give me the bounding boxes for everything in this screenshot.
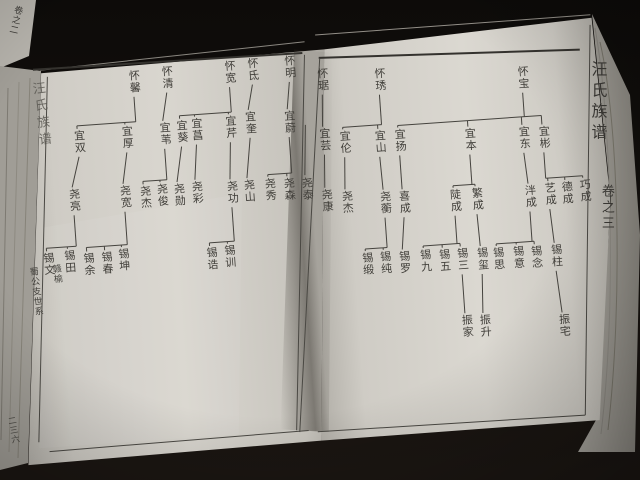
person-yao-tai: 尧泰 bbox=[298, 177, 314, 202]
person-yicheng: 艺成 bbox=[541, 182, 557, 207]
person-xi-gao: 锡诰 bbox=[203, 246, 219, 271]
person-yi-kui1: 宜葵 bbox=[173, 119, 189, 144]
person-xi-nian: 锡念 bbox=[527, 245, 543, 270]
person-huai-xiu: 怀琇 bbox=[371, 67, 387, 92]
person-yi-yang: 宜扬 bbox=[391, 128, 407, 153]
person-yao-kang: 尧康 bbox=[318, 188, 334, 213]
person-yao-jun: 尧俊 bbox=[153, 183, 169, 208]
volume-label: 卷之三 bbox=[597, 184, 616, 232]
person-yi-chang: 宜菖 bbox=[188, 117, 204, 142]
connector-line bbox=[541, 115, 542, 124]
person-doucheng: 陡成 bbox=[446, 188, 462, 213]
person-huai-kuan: 怀宽 bbox=[221, 60, 237, 85]
person-xi-yu: 锡余 bbox=[80, 252, 96, 277]
person-xi-san: 锡三 bbox=[453, 247, 469, 272]
person-yao-shan: 尧山 bbox=[240, 179, 256, 204]
person-xi-luo: 锡罗 bbox=[395, 250, 411, 275]
person-yao-gong: 尧功 bbox=[223, 180, 239, 205]
person-yao-xiu: 尧秀 bbox=[261, 177, 277, 202]
person-qiaocheng: 巧成 bbox=[576, 178, 592, 203]
connector-line bbox=[521, 117, 522, 125]
person-pancheng: 泮成 bbox=[521, 184, 537, 209]
person-yi-kui2: 宜奎 bbox=[241, 110, 257, 135]
person-xi-xun: 锡训 bbox=[221, 244, 237, 269]
person-xi-wen: 锡文 bbox=[40, 252, 56, 277]
paper-sheen bbox=[23, 194, 259, 449]
person-huai-ju: 怀琚 bbox=[313, 67, 329, 92]
person-yi-wei1: 宜苇 bbox=[156, 121, 172, 146]
person-xi-wu: 锡五 bbox=[435, 248, 451, 273]
person-huai-xin: 怀馨 bbox=[125, 69, 141, 94]
person-yi-shuang: 宜双 bbox=[70, 129, 86, 154]
person-xi-duan: 锡缎 bbox=[358, 252, 374, 277]
person-yao-jie-r: 尧杰 bbox=[338, 190, 354, 215]
person-zhen-zhai: 振宅 bbox=[555, 313, 571, 338]
book-title: 汪氏族谱 bbox=[586, 60, 610, 144]
person-yao-kuan: 尧宽 bbox=[116, 184, 132, 209]
person-xi-tian: 锡田 bbox=[61, 249, 77, 274]
photo-of-genealogy-book: 卷之二 bbox=[0, 0, 640, 480]
person-huai-bao: 怀宝 bbox=[514, 65, 530, 90]
person-xi-yi: 锡意 bbox=[509, 245, 525, 270]
person-yao-jie-l: 尧杰 bbox=[136, 185, 152, 210]
person-xi-xi: 锡玺 bbox=[473, 247, 489, 272]
person-xi-zhu: 锡柱 bbox=[547, 243, 563, 268]
person-yao-sen: 尧森 bbox=[280, 177, 296, 202]
person-fancheng: 繁成 bbox=[468, 187, 484, 212]
right-page-paper bbox=[293, 17, 625, 440]
person-zhen-sheng: 振升 bbox=[476, 314, 492, 339]
person-yao-liang: 尧亮 bbox=[65, 188, 81, 213]
person-zhen-jia: 振家 bbox=[458, 314, 474, 339]
person-xi-si: 锡思 bbox=[489, 246, 505, 271]
person-yao-xun: 尧勋 bbox=[170, 183, 186, 208]
person-yi-dong: 宜东 bbox=[515, 125, 531, 150]
person-xicheng: 喜成 bbox=[395, 190, 411, 215]
person-yi-shan: 宜山 bbox=[371, 129, 387, 154]
person-huai-ming: 怀明 bbox=[280, 55, 296, 80]
person-yi-yun: 宜芸 bbox=[316, 127, 332, 152]
person-yi-wei2: 宜蔚 bbox=[280, 110, 296, 135]
person-xi-chun1: 锡春 bbox=[98, 251, 114, 276]
person-yao-heng: 尧蘅 bbox=[376, 190, 392, 215]
person-yao-cai: 尧彩 bbox=[188, 180, 204, 205]
person-huai-di: 怀氐 bbox=[244, 57, 260, 82]
person-yi-hou: 宜厚 bbox=[118, 125, 134, 150]
person-xi-kun: 锡坤 bbox=[115, 248, 131, 273]
person-yi-ben: 宜本 bbox=[461, 127, 477, 152]
person-decheng: 德成 bbox=[558, 180, 574, 205]
person-xi-chun2: 锡纯 bbox=[376, 250, 392, 275]
person-yi-qin: 宜芹 bbox=[222, 115, 238, 140]
person-yi-lun: 宜伦 bbox=[336, 130, 352, 155]
person-huai-qing: 怀清 bbox=[158, 65, 174, 90]
book-spread: 汪氏族谱 卷之三 汪氏族谱 赣榆 蜀公支世系 二三六 怀馨怀清怀宽怀氐怀明宜双宜… bbox=[0, 0, 640, 480]
person-yi-bin: 宜彬 bbox=[535, 125, 551, 150]
person-xi-jiu: 锡九 bbox=[416, 249, 432, 274]
